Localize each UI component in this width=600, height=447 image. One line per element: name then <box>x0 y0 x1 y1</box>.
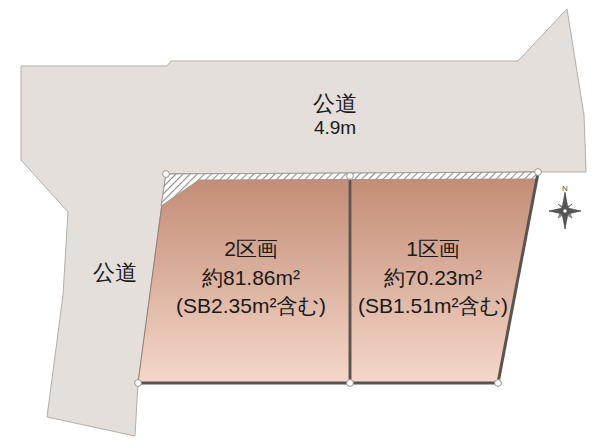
plot-diagram-drawing: N <box>0 0 600 447</box>
corner-marker <box>163 171 170 178</box>
top-road-name: 公道 <box>285 92 385 116</box>
north-label: N <box>562 184 568 193</box>
corner-marker <box>495 380 502 387</box>
top-road-width: 4.9m <box>285 117 385 138</box>
parcel-1-label-block: 1区画 約70.23m² (SB1.51m²含む) <box>333 235 533 321</box>
parcel-2-area-note: (SB2.35m²含む) <box>151 292 351 321</box>
parcel-2-id: 2区画 <box>151 235 351 264</box>
plot-diagram: N 公道 4.9m 公道 2区画 約81.86m² (SB2.35m²含む) 1… <box>0 0 600 447</box>
parcel-1-id: 1区画 <box>333 235 533 264</box>
compass-icon: N <box>549 184 581 229</box>
top-road-label-block: 公道 4.9m <box>285 92 385 138</box>
corner-marker <box>347 380 354 387</box>
parcel-2-area: 約81.86m² <box>151 264 351 293</box>
left-road-name: 公道 <box>85 261 145 285</box>
parcel-1-area: 約70.23m² <box>333 264 533 293</box>
corner-marker <box>535 169 542 176</box>
parcel-2-label-block: 2区画 約81.86m² (SB2.35m²含む) <box>151 235 351 321</box>
corner-marker <box>135 380 142 387</box>
parcel-1-area-note: (SB1.51m²含む) <box>333 292 533 321</box>
corner-marker <box>347 173 354 180</box>
